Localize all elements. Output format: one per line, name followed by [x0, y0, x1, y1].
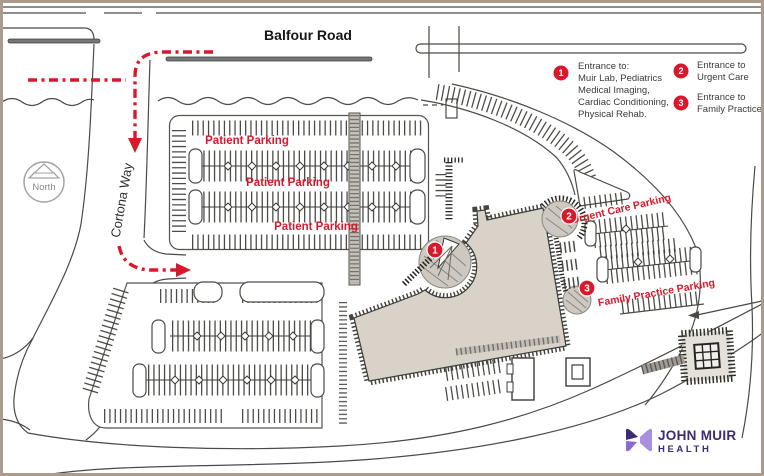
outbuilding-detail [507, 382, 513, 392]
legend-line: Entrance to: [578, 61, 629, 72]
end-island [152, 320, 165, 353]
entrance-marker-2: 2 [561, 208, 577, 224]
patient-parking-label-1: Patient Parking [205, 135, 289, 147]
lot-outline [89, 283, 322, 428]
balfour-median-center [166, 57, 372, 61]
campus-map: Balfour Road Cortona Way Patient Parking… [0, 0, 764, 476]
logo-title: JOHN MUIR [658, 428, 736, 443]
legend-line: Entrance to [697, 92, 746, 103]
legend-line: Physical Rehab. [578, 109, 647, 120]
legend-line: Medical Imaging, [578, 85, 650, 96]
lower-parking-lot [89, 282, 324, 428]
balfour-median-left [8, 39, 100, 43]
end-island [597, 257, 608, 282]
patient-parking-label-3: Patient Parking [274, 221, 358, 233]
outbuilding2-detail [572, 365, 583, 379]
end-island [690, 247, 701, 272]
trellis-inner [694, 343, 720, 369]
legend-number-1: 1 [558, 68, 563, 78]
legend-line: Family Practice [697, 104, 762, 115]
legend-line: Entrance to [697, 60, 746, 71]
island [194, 282, 222, 302]
legend-line: Cardiac Conditioning, [578, 97, 669, 108]
trellis-structure [681, 330, 732, 381]
end-island [133, 364, 146, 397]
legend-line: Muir Lab, Pediatrics [578, 73, 662, 84]
island [240, 282, 324, 302]
marker-2-number: 2 [566, 212, 572, 223]
legend-line: Urgent Care [697, 72, 749, 83]
end-island [311, 320, 324, 353]
entrance-marker-1: 1 [427, 242, 443, 258]
outbuilding-detail [507, 364, 513, 374]
map-canvas: Balfour Road Cortona Way Patient Parking… [0, 0, 764, 476]
legend-number-2: 2 [678, 66, 683, 76]
end-island [189, 149, 202, 183]
outbuilding [512, 358, 534, 400]
logo-subtitle: HEALTH [658, 444, 711, 455]
end-island [311, 364, 324, 397]
end-island [410, 149, 425, 183]
street-label-balfour: Balfour Road [264, 27, 352, 43]
north-compass: North [24, 162, 64, 202]
legend-number-3: 3 [678, 98, 683, 108]
patient-parking-label-2: Patient Parking [246, 177, 330, 189]
end-island [585, 221, 596, 246]
marker-1-number: 1 [432, 246, 438, 257]
end-island [410, 190, 425, 224]
end-island [189, 190, 202, 224]
entrance-marker-3: 3 [579, 280, 595, 296]
marker-3-number: 3 [584, 284, 590, 295]
compass-label: North [32, 182, 55, 193]
balfour-median-island [416, 44, 746, 53]
